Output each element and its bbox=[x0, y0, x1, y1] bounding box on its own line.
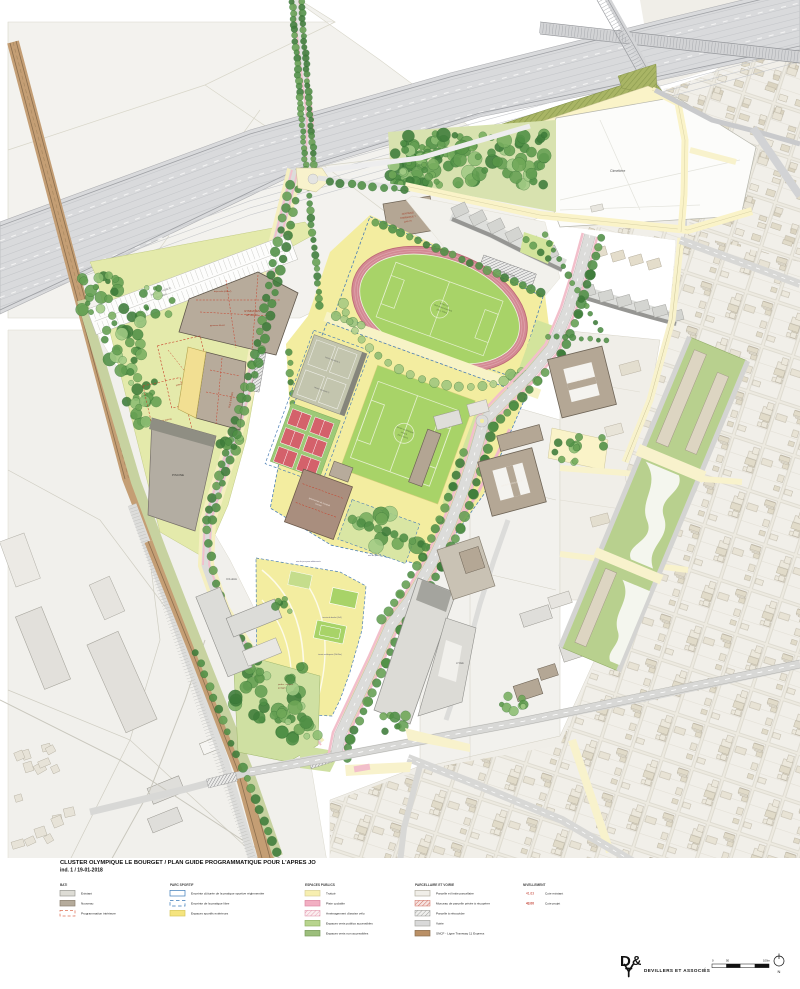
svg-text:CLUSTER OLYMPIQUE LE BOURGET /: CLUSTER OLYMPIQUE LE BOURGET / PLAN GUID… bbox=[60, 860, 316, 866]
svg-text:Espaces sportifs extérieurs: Espaces sportifs extérieurs bbox=[191, 912, 229, 916]
svg-text:SNCF - Ligne Tramway 11 Expres: SNCF - Ligne Tramway 11 Express bbox=[436, 932, 485, 936]
svg-text:N: N bbox=[778, 969, 781, 974]
svg-text:Programmation intérieure: Programmation intérieure bbox=[81, 912, 116, 916]
svg-text:aire de jeux: aire de jeux bbox=[368, 554, 380, 557]
svg-text:PARCELLAIRE ET VOIRIE: PARCELLAIRE ET VOIRIE bbox=[415, 883, 454, 887]
svg-text:Enceinte clôturée de la pratiq: Enceinte clôturée de la pratique sportiv… bbox=[191, 892, 265, 896]
svg-text:partagés: partagés bbox=[278, 687, 286, 690]
svg-text:ET DOJO: ET DOJO bbox=[246, 313, 257, 317]
svg-text:&: & bbox=[632, 953, 641, 968]
svg-text:Piste cyclable: Piste cyclable bbox=[326, 902, 345, 906]
svg-text:Voirie: Voirie bbox=[436, 922, 444, 926]
svg-text:Nouveau: Nouveau bbox=[81, 902, 94, 906]
svg-text:DEVILLERS ET ASSOCIÉS: DEVILLERS ET ASSOCIÉS bbox=[644, 966, 710, 973]
svg-text:PISCINE: PISCINE bbox=[172, 473, 184, 477]
svg-text:Parcelle et limite parcellaire: Parcelle et limite parcellaire bbox=[436, 892, 474, 896]
svg-text:Cote existant: Cote existant bbox=[545, 892, 563, 896]
svg-text:Cimetière: Cimetière bbox=[610, 169, 625, 173]
svg-text:50: 50 bbox=[726, 959, 730, 963]
svg-text:Espaces verts publics accessib: Espaces verts publics accessibles bbox=[326, 922, 373, 926]
svg-text:Existant: Existant bbox=[81, 892, 92, 896]
svg-text:Espaces verts non accessibles: Espaces verts non accessibles bbox=[326, 932, 369, 936]
svg-text:43.00: 43.00 bbox=[526, 902, 534, 906]
svg-text:LYCEE: LYCEE bbox=[456, 662, 464, 665]
svg-text:COLLEGE: COLLEGE bbox=[226, 579, 237, 581]
svg-text:Aménagement d'assise vélo: Aménagement d'assise vélo bbox=[326, 912, 365, 916]
svg-text:Parcelle à rétrocéder: Parcelle à rétrocéder bbox=[436, 912, 465, 916]
svg-text:Trottoir: Trottoir bbox=[326, 892, 336, 896]
svg-text:100m: 100m bbox=[763, 959, 771, 963]
svg-text:GYMNASES: GYMNASES bbox=[244, 309, 260, 313]
svg-text:ESPACES PUBLICS: ESPACES PUBLICS bbox=[305, 883, 335, 887]
svg-text:gymnase 44x24: gymnase 44x24 bbox=[210, 325, 226, 327]
svg-text:41.63: 41.63 bbox=[526, 892, 534, 896]
svg-text:dojo+salle (650m²): dojo+salle (650m²) bbox=[214, 290, 232, 293]
svg-text:PARC SPORTIF: PARC SPORTIF bbox=[170, 883, 194, 887]
svg-text:BATI: BATI bbox=[60, 883, 67, 887]
svg-text:NIVELLEMENT: NIVELLEMENT bbox=[523, 883, 546, 887]
svg-text:aire de jeux pour adolescents: aire de jeux pour adolescents bbox=[296, 560, 321, 563]
svg-text:Enceinte de la pratique libre: Enceinte de la pratique libre bbox=[191, 902, 230, 906]
svg-text:terrain de basket (3x3): terrain de basket (3x3) bbox=[323, 616, 342, 619]
svg-text:Morceau de parcelle privée à r: Morceau de parcelle privée à récupérer bbox=[436, 902, 490, 906]
svg-text:terrain multisports (33x15m): terrain multisports (33x15m) bbox=[318, 653, 342, 656]
svg-text:jardins + vergers: jardins + vergers bbox=[277, 684, 293, 686]
svg-text:Cote projet: Cote projet bbox=[545, 902, 560, 906]
svg-text:ind. 1 / 19-01-2018: ind. 1 / 19-01-2018 bbox=[60, 868, 103, 874]
